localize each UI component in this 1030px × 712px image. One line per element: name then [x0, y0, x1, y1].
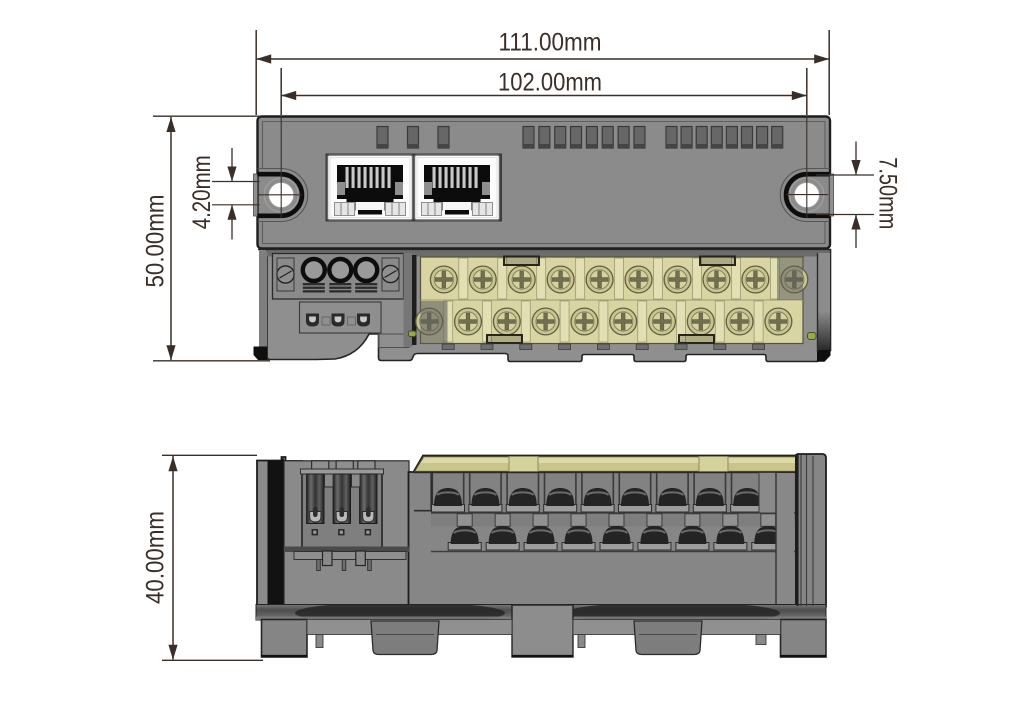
svg-text:111.00mm: 111.00mm	[499, 29, 602, 57]
svg-text:40.00mm: 40.00mm	[141, 511, 169, 604]
svg-text:4.20mm: 4.20mm	[188, 155, 216, 229]
svg-text:7.50mm: 7.50mm	[874, 157, 902, 229]
svg-text:50.00mm: 50.00mm	[141, 195, 169, 288]
svg-text:102.00mm: 102.00mm	[498, 69, 602, 97]
